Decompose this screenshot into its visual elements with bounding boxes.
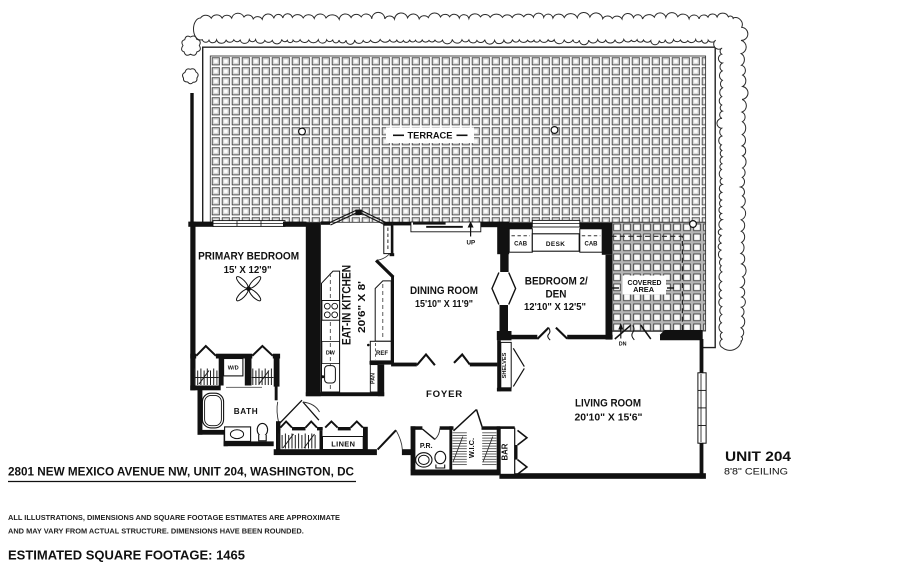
svg-text:BAR: BAR — [500, 443, 509, 460]
svg-text:8'8" CEILING: 8'8" CEILING — [724, 467, 788, 478]
svg-text:UP: UP — [466, 240, 475, 247]
svg-text:W/D: W/D — [228, 366, 239, 372]
svg-text:REF: REF — [376, 351, 388, 357]
svg-text:CAB: CAB — [585, 242, 599, 248]
svg-text:BEDROOM 2/: BEDROOM 2/ — [525, 276, 588, 288]
svg-text:DEN: DEN — [546, 289, 567, 301]
svg-text:CAB: CAB — [514, 242, 528, 248]
svg-text:20'10" X 15'6": 20'10" X 15'6" — [575, 413, 643, 424]
svg-text:UNIT 204: UNIT 204 — [725, 449, 791, 464]
svg-text:W.I.C.: W.I.C. — [467, 438, 476, 458]
svg-text:2801 NEW MEXICO AVENUE NW, UNI: 2801 NEW MEXICO AVENUE NW, UNIT 204, WAS… — [8, 465, 354, 479]
svg-text:DW: DW — [326, 351, 336, 357]
svg-text:AND MAY VARY FROM ACTUAL STRUC: AND MAY VARY FROM ACTUAL STRUCTURE. DIME… — [8, 527, 304, 536]
svg-text:AREA: AREA — [633, 285, 654, 294]
svg-text:EAT-IN KITCHEN: EAT-IN KITCHEN — [342, 265, 354, 345]
svg-text:ESTIMATED SQUARE FOOTAGE: 1465: ESTIMATED SQUARE FOOTAGE: 1465 — [8, 548, 245, 563]
svg-text:20'6" X 8': 20'6" X 8' — [357, 281, 368, 333]
svg-text:LIVING ROOM: LIVING ROOM — [575, 398, 641, 410]
svg-text:FOYER: FOYER — [426, 389, 463, 400]
svg-text:DN: DN — [619, 342, 627, 348]
svg-text:DINING ROOM: DINING ROOM — [410, 285, 478, 297]
svg-text:15'10" X 11'9": 15'10" X 11'9" — [415, 299, 473, 310]
svg-text:15' X 12'9": 15' X 12'9" — [224, 265, 272, 276]
svg-text:DESK: DESK — [546, 241, 565, 248]
svg-text:ALL ILLUSTRATIONS, DIMENSIONS: ALL ILLUSTRATIONS, DIMENSIONS AND SQUARE… — [8, 513, 340, 522]
svg-text:12'10" X 12'5": 12'10" X 12'5" — [524, 302, 586, 313]
svg-text:P.R.: P.R. — [420, 443, 433, 450]
svg-text:PRIMARY BEDROOM: PRIMARY BEDROOM — [198, 251, 299, 263]
svg-text:SHELVES: SHELVES — [502, 352, 508, 378]
svg-text:BATH: BATH — [234, 407, 259, 416]
svg-text:TERRACE: TERRACE — [408, 131, 453, 141]
svg-text:PAN: PAN — [370, 373, 376, 384]
svg-text:LINEN: LINEN — [331, 439, 355, 448]
